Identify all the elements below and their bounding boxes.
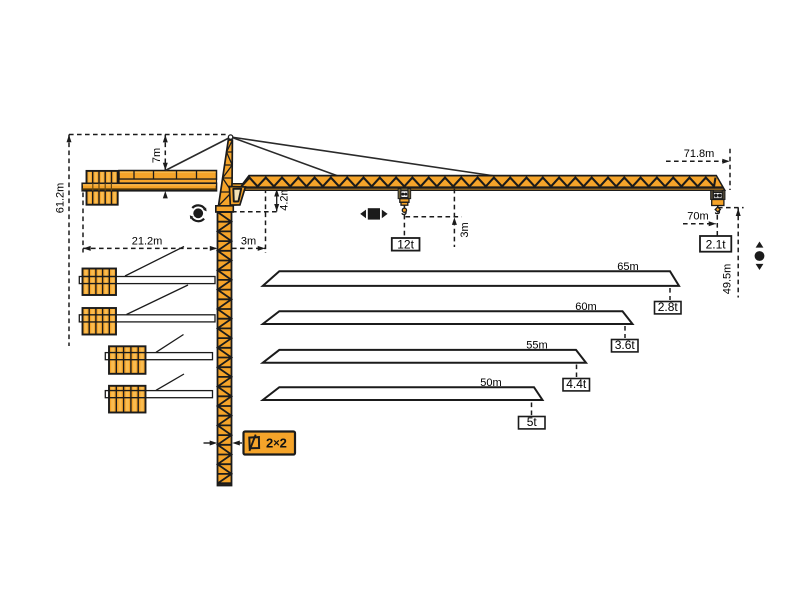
svg-text:5t: 5t <box>527 415 538 429</box>
svg-text:2.1t: 2.1t <box>706 237 727 251</box>
svg-text:3m: 3m <box>241 235 256 247</box>
svg-text:55m: 55m <box>526 340 547 352</box>
svg-text:7m: 7m <box>151 148 163 163</box>
svg-text:61.2m: 61.2m <box>55 183 67 214</box>
svg-text:21.2m: 21.2m <box>132 235 163 247</box>
svg-text:70m: 70m <box>687 210 708 222</box>
svg-text:4.4t: 4.4t <box>566 377 587 391</box>
svg-text:49.5m: 49.5m <box>722 264 734 295</box>
svg-text:2.8t: 2.8t <box>658 300 679 314</box>
svg-text:2×2: 2×2 <box>266 435 287 450</box>
svg-text:65m: 65m <box>617 261 638 273</box>
svg-text:60m: 60m <box>575 301 596 313</box>
svg-text:12t: 12t <box>397 237 414 251</box>
svg-text:3m: 3m <box>459 222 471 237</box>
svg-text:50m: 50m <box>480 377 501 389</box>
svg-text:3.6t: 3.6t <box>615 338 636 352</box>
svg-text:71.8m: 71.8m <box>684 148 715 160</box>
